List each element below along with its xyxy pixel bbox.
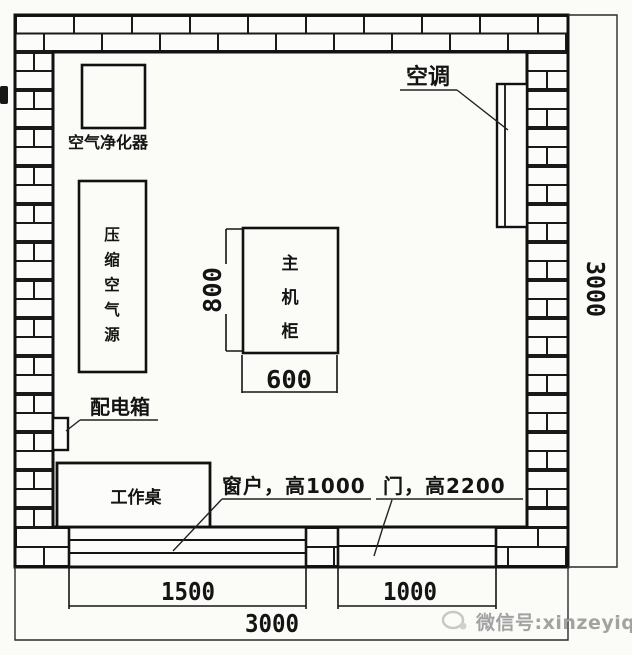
floor-plan-image: 空气净化器 压 缩 空 气 源 主 机 柜 800 600 空调 配电箱 工作桌…	[0, 0, 632, 655]
svg-text:气: 气	[103, 300, 120, 319]
door-note: 门，高2200	[383, 474, 506, 498]
wechat-logo-icon	[443, 612, 467, 630]
svg-text:机: 机	[282, 287, 299, 308]
watermark-text: 微信号:xinzeyiqi	[475, 611, 632, 634]
svg-text:主: 主	[282, 253, 299, 274]
window-note: 窗户，高1000	[222, 474, 366, 498]
compressed-air-source-label: 压 缩 空 气 源	[103, 226, 120, 344]
dimension-cabinet-width: 600	[242, 355, 337, 394]
svg-text:柜: 柜	[282, 321, 299, 342]
dimension-window-width: 1500	[69, 567, 306, 609]
window-symbol	[69, 527, 306, 567]
scan-artifact	[0, 86, 8, 104]
distribution-box-leader	[66, 420, 158, 431]
dim-800: 800	[198, 267, 227, 313]
svg-text:压: 压	[104, 226, 120, 244]
dim-1500: 1500	[161, 577, 215, 606]
work-desk-label: 工作桌	[111, 487, 163, 508]
wall-top	[15, 15, 568, 52]
dim-600: 600	[266, 365, 312, 394]
dim-3000-width: 3000	[245, 609, 299, 638]
air-purifier-label: 空气净化器	[68, 133, 149, 152]
svg-text:空: 空	[104, 275, 120, 294]
distribution-box	[53, 418, 68, 450]
air-conditioner-unit	[497, 84, 527, 227]
svg-text:源: 源	[104, 325, 120, 344]
distribution-box-label: 配电箱	[90, 395, 150, 419]
air-purifier-box	[82, 65, 145, 128]
door-symbol	[338, 527, 496, 566]
dim-3000-depth: 3000	[581, 261, 610, 317]
watermark: 微信号:xinzeyiqi	[443, 611, 632, 634]
dimension-cabinet-depth: 800	[198, 229, 242, 351]
main-cabinet-label: 主 机 柜	[282, 253, 299, 342]
dim-1000: 1000	[383, 577, 437, 606]
dimension-door-width: 1000	[338, 567, 496, 609]
wall-right	[527, 52, 568, 527]
floor-plan-drawing: 空气净化器 压 缩 空 气 源 主 机 柜 800 600 空调 配电箱 工作桌…	[0, 0, 632, 655]
air-conditioner-leader	[400, 90, 508, 130]
wall-left	[15, 52, 53, 527]
svg-text:缩: 缩	[104, 250, 120, 269]
air-conditioner-label: 空调	[406, 64, 450, 90]
